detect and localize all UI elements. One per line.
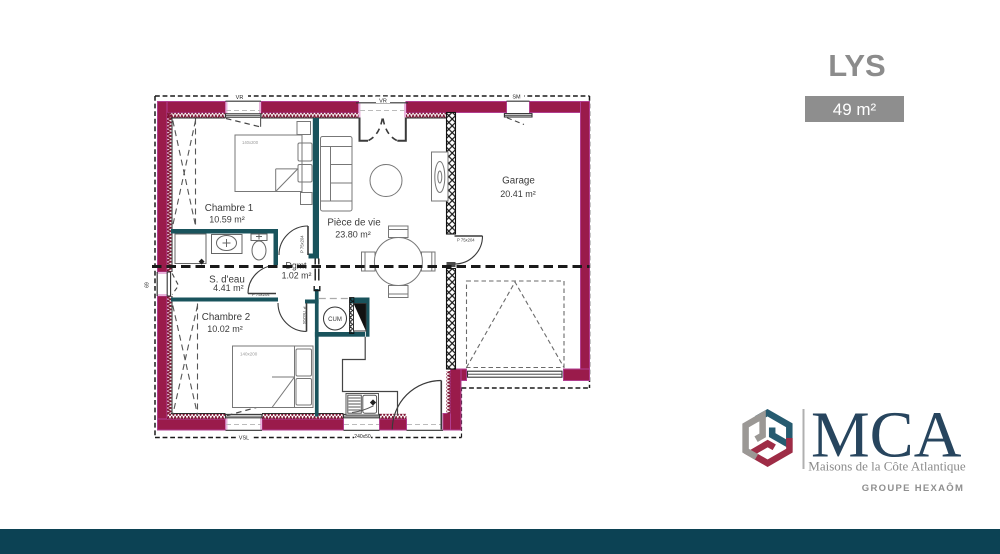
svg-text:CUM: CUM — [328, 317, 342, 323]
svg-text:Chambre 2: Chambre 2 — [202, 312, 250, 323]
svg-text:LYS: LYS — [828, 48, 885, 83]
svg-text:Maisons de la Côte Atlantique: Maisons de la Côte Atlantique — [808, 459, 966, 474]
svg-text:4.41 m²: 4.41 m² — [213, 283, 244, 293]
svg-text:10.59 m²: 10.59 m² — [209, 215, 245, 225]
svg-text:P 75x204: P 75x204 — [457, 238, 475, 243]
svg-text:10.02 m²: 10.02 m² — [207, 324, 243, 334]
svg-text:P 75x204: P 75x204 — [300, 235, 305, 253]
svg-text:Chambre 1: Chambre 1 — [205, 203, 253, 214]
svg-text:Garage: Garage — [502, 176, 535, 187]
svg-text:Pièce de vie: Pièce de vie — [327, 218, 381, 229]
svg-text:20.41 m²: 20.41 m² — [500, 189, 536, 199]
svg-text:P 75x204: P 75x204 — [252, 292, 270, 297]
svg-text:49 m²: 49 m² — [833, 100, 877, 119]
svg-text:VSL: VSL — [239, 436, 249, 442]
svg-text:P 75x204: P 75x204 — [302, 307, 307, 325]
svg-text:140x200: 140x200 — [240, 352, 258, 357]
svg-text:240x50: 240x50 — [354, 434, 371, 440]
svg-text:23.80 m²: 23.80 m² — [335, 230, 371, 240]
svg-text:1.02 m²: 1.02 m² — [282, 271, 312, 281]
svg-text:140x200: 140x200 — [242, 140, 259, 145]
svg-text:69: 69 — [145, 282, 151, 288]
svg-text:VR: VR — [379, 98, 387, 104]
svg-text:GROUPE HEXAÔM: GROUPE HEXAÔM — [862, 482, 964, 494]
svg-text:VR: VR — [236, 95, 244, 101]
svg-text:SM: SM — [512, 95, 521, 101]
